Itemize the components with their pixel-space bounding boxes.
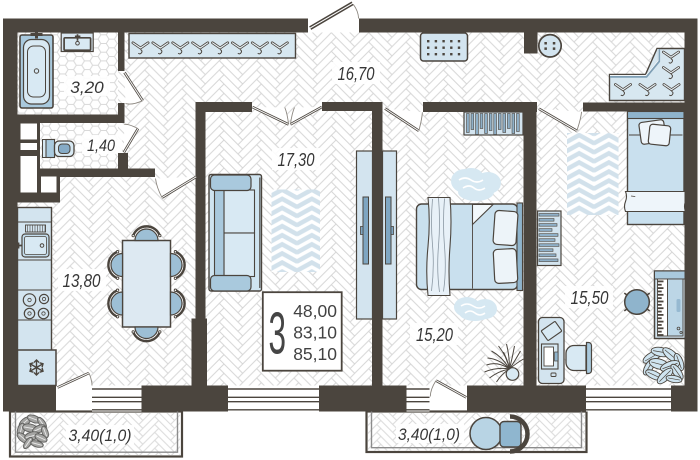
svg-text:48,00: 48,00	[293, 301, 337, 321]
svg-text:3,40(1,0): 3,40(1,0)	[398, 426, 460, 444]
svg-text:85,10: 85,10	[293, 344, 337, 364]
svg-text:3,40(1,0): 3,40(1,0)	[69, 427, 132, 445]
svg-text:83,10: 83,10	[293, 323, 337, 343]
svg-text:3,20: 3,20	[70, 79, 104, 97]
svg-text:13,80: 13,80	[63, 270, 102, 291]
svg-text:3: 3	[269, 301, 287, 367]
svg-text:15,50: 15,50	[571, 287, 610, 308]
svg-text:17,30: 17,30	[278, 149, 316, 170]
svg-text:16,70: 16,70	[338, 63, 376, 84]
svg-text:15,20: 15,20	[416, 324, 454, 345]
svg-text:1,40: 1,40	[87, 137, 116, 155]
